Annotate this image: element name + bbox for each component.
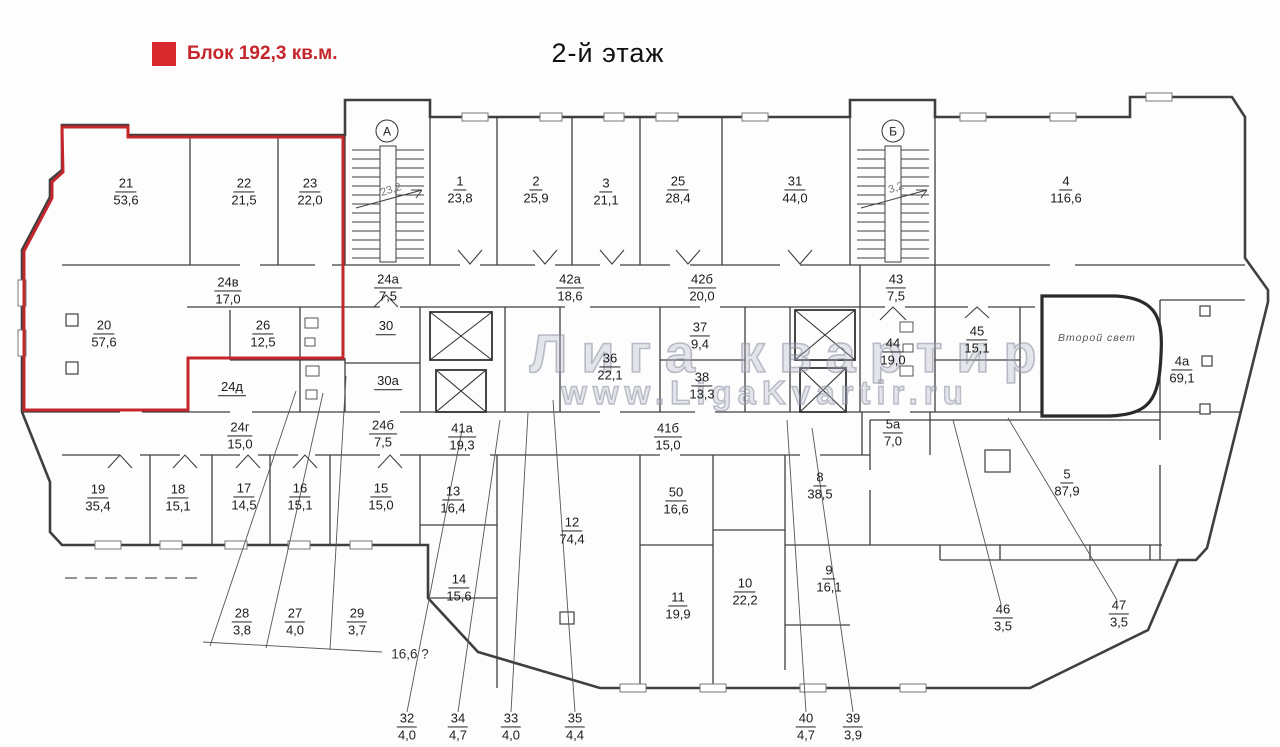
room-number: 5а (883, 417, 903, 433)
room-number: 3 (599, 176, 612, 192)
room-area: 4,0 (501, 727, 521, 743)
room-number: 30 (376, 319, 396, 335)
room-label-46: 463,5 (993, 602, 1013, 633)
room-label-19: 1935,4 (85, 482, 110, 513)
room-label-24г: 24г15,0 (227, 420, 252, 451)
room-area: 21,1 (593, 192, 618, 208)
room-area: 69,1 (1169, 370, 1194, 386)
room-area: 7,5 (369, 434, 397, 450)
room-label-31: 3144,0 (782, 174, 807, 205)
room-area: 15,6 (446, 588, 471, 604)
room-number: 47 (1109, 598, 1129, 614)
room-area: 74,4 (559, 531, 584, 547)
room-label-34: 344,7 (448, 711, 468, 742)
room-area: 4,0 (285, 622, 305, 638)
room-label-27: 274,0 (285, 606, 305, 637)
room-label-24а: 24а7,5 (374, 272, 402, 303)
room-label-32: 324,0 (397, 711, 417, 742)
room-label-14: 1415,6 (446, 572, 471, 603)
room-label-17: 1714,5 (231, 481, 256, 512)
floor-plan-page: Лига квартир www.LigaKvartir.ru 2-й этаж… (0, 0, 1280, 747)
room-label-11: 1119,9 (665, 590, 690, 621)
room-area: 57,6 (91, 334, 116, 350)
room-label-42б: 42б20,0 (688, 272, 716, 303)
room-label-1: 123,8 (447, 174, 472, 205)
room-area: 16,1 (816, 579, 841, 595)
room-label-22: 2221,5 (231, 176, 256, 207)
room-area: 15,0 (654, 437, 682, 453)
room-number: 8 (813, 470, 826, 486)
stairwell-b-letter: Б (882, 120, 905, 143)
room-number: 24б (369, 418, 397, 434)
room-label-25: 2528,4 (665, 174, 690, 205)
room-number: 36 (600, 351, 620, 367)
room-label-13: 1316,4 (440, 484, 465, 515)
room-label-24д: 24д (218, 380, 246, 396)
room-number: 4а (1172, 354, 1192, 370)
room-area: 15,0 (368, 497, 393, 513)
room-area: 13,3 (689, 386, 714, 402)
room-number: 14 (449, 572, 469, 588)
room-number: 38 (692, 370, 712, 386)
room-label-41б: 41б15,0 (654, 421, 682, 452)
room-area: 3,5 (1109, 614, 1129, 630)
room-number: 11 (668, 590, 688, 606)
room-label-38: 3813,3 (689, 370, 714, 401)
room-number: 41а (448, 421, 476, 437)
room-label-16: 1615,1 (287, 481, 312, 512)
legend-label: Блок 192,3 кв.м. (187, 43, 338, 65)
room-area: 4,7 (796, 727, 816, 743)
room-area: 3,9 (843, 727, 863, 743)
room-label-4: 4116,6 (1050, 174, 1082, 205)
room-area: 19,9 (665, 606, 690, 622)
room-label-47: 473,5 (1109, 598, 1129, 629)
room-number: 18 (168, 482, 188, 498)
room-area: 19,3 (448, 437, 476, 453)
room-label-44: 4419,0 (880, 336, 905, 367)
room-number: 43 (886, 272, 906, 288)
room-area: 44,0 (782, 190, 807, 206)
atrium-outline (1042, 296, 1161, 416)
room-number: 30а (374, 374, 402, 390)
room-number: 44 (883, 336, 903, 352)
room-area: 28,4 (665, 190, 690, 206)
legend: Блок 192,3 кв.м. (152, 42, 338, 66)
atrium-label: Второй свет (1058, 332, 1136, 344)
room-number: 21 (116, 176, 136, 192)
room-area: 15,1 (287, 497, 312, 513)
room-area: 4,7 (448, 727, 468, 743)
room-area: 87,9 (1054, 483, 1079, 499)
room-label-3: 321,1 (593, 176, 618, 207)
room-number: 46 (993, 602, 1013, 618)
room-area: 21,5 (231, 192, 256, 208)
room-area: 18,6 (556, 288, 584, 304)
room-label-45: 4515,1 (964, 324, 989, 355)
room-number: 50 (666, 485, 686, 501)
room-number: 42б (688, 272, 716, 288)
room-area: 7,5 (886, 288, 906, 304)
room-label-10: 1022,2 (732, 576, 757, 607)
room-number: 5 (1060, 467, 1073, 483)
room-number: 12 (562, 515, 582, 531)
room-number: 1 (453, 174, 466, 190)
room-number: 29 (347, 606, 367, 622)
room-label-26: 2612,5 (250, 318, 275, 349)
room-label-36: 3622,1 (597, 351, 622, 382)
room-number: 26 (253, 318, 273, 334)
room-label-5а: 5а7,0 (883, 417, 903, 448)
room-number: 17 (234, 481, 254, 497)
room-label-43: 437,5 (886, 272, 906, 303)
room-number: 24д (218, 380, 246, 396)
room-number: 22 (234, 176, 254, 192)
room-area: 16,4 (440, 500, 465, 516)
room-number: 27 (285, 606, 305, 622)
room-area: 14,5 (231, 497, 256, 513)
room-number: 31 (785, 174, 805, 190)
room-area: 20,0 (688, 288, 716, 304)
room-number: 10 (735, 576, 755, 592)
room-area: 16,6 (663, 501, 688, 517)
room-label-21: 2153,6 (113, 176, 138, 207)
room-number: 19 (88, 482, 108, 498)
room-area: 53,6 (113, 192, 138, 208)
room-area: 3,8 (232, 622, 252, 638)
room-number: 42а (556, 272, 584, 288)
floor-plan-drawing: Лига квартир www.LigaKvartir.ru (0, 0, 1280, 747)
page-title: 2-й этаж (552, 38, 665, 69)
room-area: 15,1 (964, 340, 989, 356)
room-label-18: 1815,1 (165, 482, 190, 513)
room-number: 28 (232, 606, 252, 622)
room-number: 25 (668, 174, 688, 190)
room-label-35: 354,4 (565, 711, 585, 742)
room-label-42а: 42а18,6 (556, 272, 584, 303)
room-number: 23 (300, 176, 320, 192)
room-label-28: 283,8 (232, 606, 252, 637)
room-label-8: 838,5 (807, 470, 832, 501)
room-label-50: 5016,6 (663, 485, 688, 516)
room-area: 22,2 (732, 592, 757, 608)
room-area: 7,0 (883, 433, 903, 449)
stairwell-a-letter: А (376, 120, 399, 143)
room-number: 24г (227, 420, 252, 436)
room-area: 15,0 (227, 436, 252, 452)
room-label-33: 334,0 (501, 711, 521, 742)
room-number: 33 (501, 711, 521, 727)
room-area: 23,8 (447, 190, 472, 206)
unclear-area-note: 16,6 ? (391, 647, 429, 662)
room-label-30: 30 (376, 319, 396, 335)
room-number: 15 (371, 481, 391, 497)
room-area: 22,0 (297, 192, 322, 208)
room-area: 38,5 (807, 486, 832, 502)
room-number: 13 (443, 484, 463, 500)
room-area: 15,1 (165, 498, 190, 514)
room-number: 41б (654, 421, 682, 437)
room-number: 40 (796, 711, 816, 727)
room-number: 2 (529, 174, 542, 190)
room-label-12: 1274,4 (559, 515, 584, 546)
room-label-15: 1515,0 (368, 481, 393, 512)
room-label-23: 2322,0 (297, 176, 322, 207)
legend-color-swatch (152, 42, 176, 66)
room-area: 3,7 (347, 622, 367, 638)
room-number: 35 (565, 711, 585, 727)
room-number: 24в (214, 275, 241, 291)
room-label-41а: 41а19,3 (448, 421, 476, 452)
room-area: 7,5 (374, 288, 402, 304)
room-area: 9,4 (690, 336, 710, 352)
room-area: 25,9 (523, 190, 548, 206)
room-label-24в: 24в17,0 (214, 275, 241, 306)
room-area: 22,1 (597, 367, 622, 383)
room-number: 4 (1059, 174, 1072, 190)
room-area: 35,4 (85, 498, 110, 514)
room-label-9: 916,1 (816, 563, 841, 594)
room-area: 19,0 (880, 352, 905, 368)
room-number: 45 (967, 324, 987, 340)
room-label-24б: 24б7,5 (369, 418, 397, 449)
room-area: 17,0 (214, 291, 241, 307)
room-number: 20 (94, 318, 114, 334)
room-area: 3,5 (993, 618, 1013, 634)
room-area: 12,5 (250, 334, 275, 350)
room-area: 116,6 (1050, 190, 1082, 206)
room-label-40: 404,7 (796, 711, 816, 742)
room-number: 39 (843, 711, 863, 727)
room-number: 32 (397, 711, 417, 727)
room-number: 37 (690, 320, 710, 336)
room-label-29: 293,7 (347, 606, 367, 637)
room-area: 4,4 (565, 727, 585, 743)
room-label-2: 225,9 (523, 174, 548, 205)
room-number: 9 (822, 563, 835, 579)
room-label-5: 587,9 (1054, 467, 1079, 498)
room-label-4а: 4а69,1 (1169, 354, 1194, 385)
room-label-37: 379,4 (690, 320, 710, 351)
room-label-20: 2057,6 (91, 318, 116, 349)
room-label-30а: 30а (374, 374, 402, 390)
room-number: 24а (374, 272, 402, 288)
room-label-39: 393,9 (843, 711, 863, 742)
room-number: 34 (448, 711, 468, 727)
room-number: 16 (290, 481, 310, 497)
room-area: 4,0 (397, 727, 417, 743)
